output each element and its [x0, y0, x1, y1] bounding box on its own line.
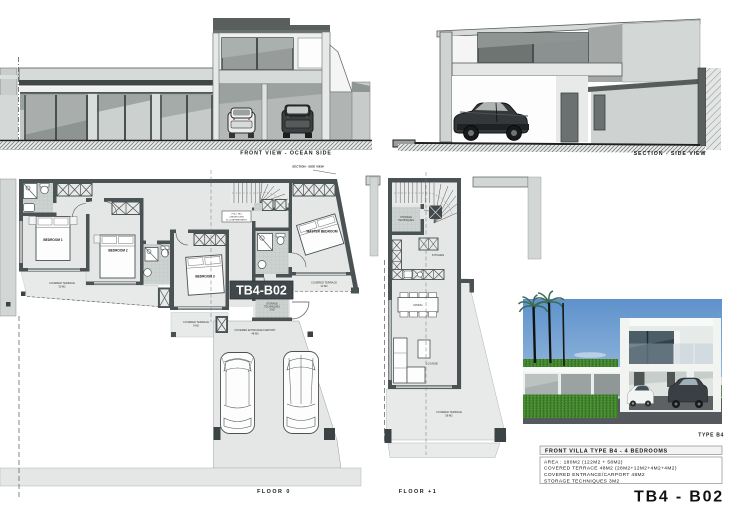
svg-text:4 BEDROOMS: 4 BEDROOMS: [229, 217, 244, 219]
svg-text:COVERED TERRACE: COVERED TERRACE: [311, 281, 337, 285]
svg-text:48 M2: 48 M2: [251, 332, 259, 336]
svg-text:TECHNIQUES: TECHNIQUES: [398, 219, 414, 222]
svg-text:COVERED TERRACE 48M2 (28M2+12M: COVERED TERRACE 48M2 (28M2+12M2+4M2+4M2): [544, 466, 677, 472]
svg-text:COVERED ENTRANCE/CARPORT 48M2: COVERED ENTRANCE/CARPORT 48M2: [544, 472, 645, 478]
svg-text:DINING: DINING: [413, 303, 422, 307]
svg-text:SL.02 APPARTMENT: SL.02 APPARTMENT: [226, 219, 248, 222]
svg-text:12 M2: 12 M2: [320, 284, 328, 288]
svg-text:9 M2: 9 M2: [193, 324, 199, 328]
svg-text:FLOOR +1: FLOOR +1: [399, 489, 438, 495]
svg-text:COVERED ENTRANCE/CARPORT: COVERED ENTRANCE/CARPORT: [234, 328, 276, 332]
svg-text:30 M2: 30 M2: [58, 285, 66, 289]
svg-text:LOUNGE: LOUNGE: [426, 362, 438, 366]
svg-text:SECTION - SIDE VIEW: SECTION - SIDE VIEW: [634, 151, 707, 157]
svg-text:FRONT VIEW - OCEAN SIDE: FRONT VIEW - OCEAN SIDE: [240, 151, 332, 157]
svg-text:TB4 - B02: TB4 - B02: [634, 489, 724, 506]
svg-text:3 M2: 3 M2: [269, 309, 275, 312]
svg-text:STORAGE TECHNIQUES 3M2: STORAGE TECHNIQUES 3M2: [544, 479, 620, 485]
svg-text:COVERED TERRACE: COVERED TERRACE: [183, 320, 209, 324]
svg-text:FULL TB4: FULL TB4: [232, 214, 243, 216]
svg-text:FRONT VILLA TYPE B4 - 4 BEDROO: FRONT VILLA TYPE B4 - 4 BEDROOMS: [545, 449, 668, 455]
svg-text:TB4-B02: TB4-B02: [236, 284, 287, 298]
svg-text:SECTION - SIDE VIEW: SECTION - SIDE VIEW: [292, 165, 324, 169]
svg-text:BEDROOM 1: BEDROOM 1: [43, 238, 63, 242]
svg-text:KITCHEN: KITCHEN: [432, 253, 444, 257]
svg-text:TYPE B4: TYPE B4: [698, 433, 724, 439]
svg-text:MASTER BEDROOM: MASTER BEDROOM: [307, 230, 338, 234]
svg-text:58 M2: 58 M2: [445, 414, 453, 418]
svg-text:BEDROOM 2: BEDROOM 2: [108, 249, 128, 253]
svg-text:FLOOR 0: FLOOR 0: [257, 489, 291, 495]
svg-text:AREA : 180M2 (122M2 + 58M2): AREA : 180M2 (122M2 + 58M2): [544, 459, 623, 465]
svg-text:COVERED TERRACE: COVERED TERRACE: [436, 410, 462, 414]
svg-text:COVERED TERRACE: COVERED TERRACE: [49, 281, 75, 285]
svg-text:BEDROOM 3: BEDROOM 3: [195, 275, 215, 279]
